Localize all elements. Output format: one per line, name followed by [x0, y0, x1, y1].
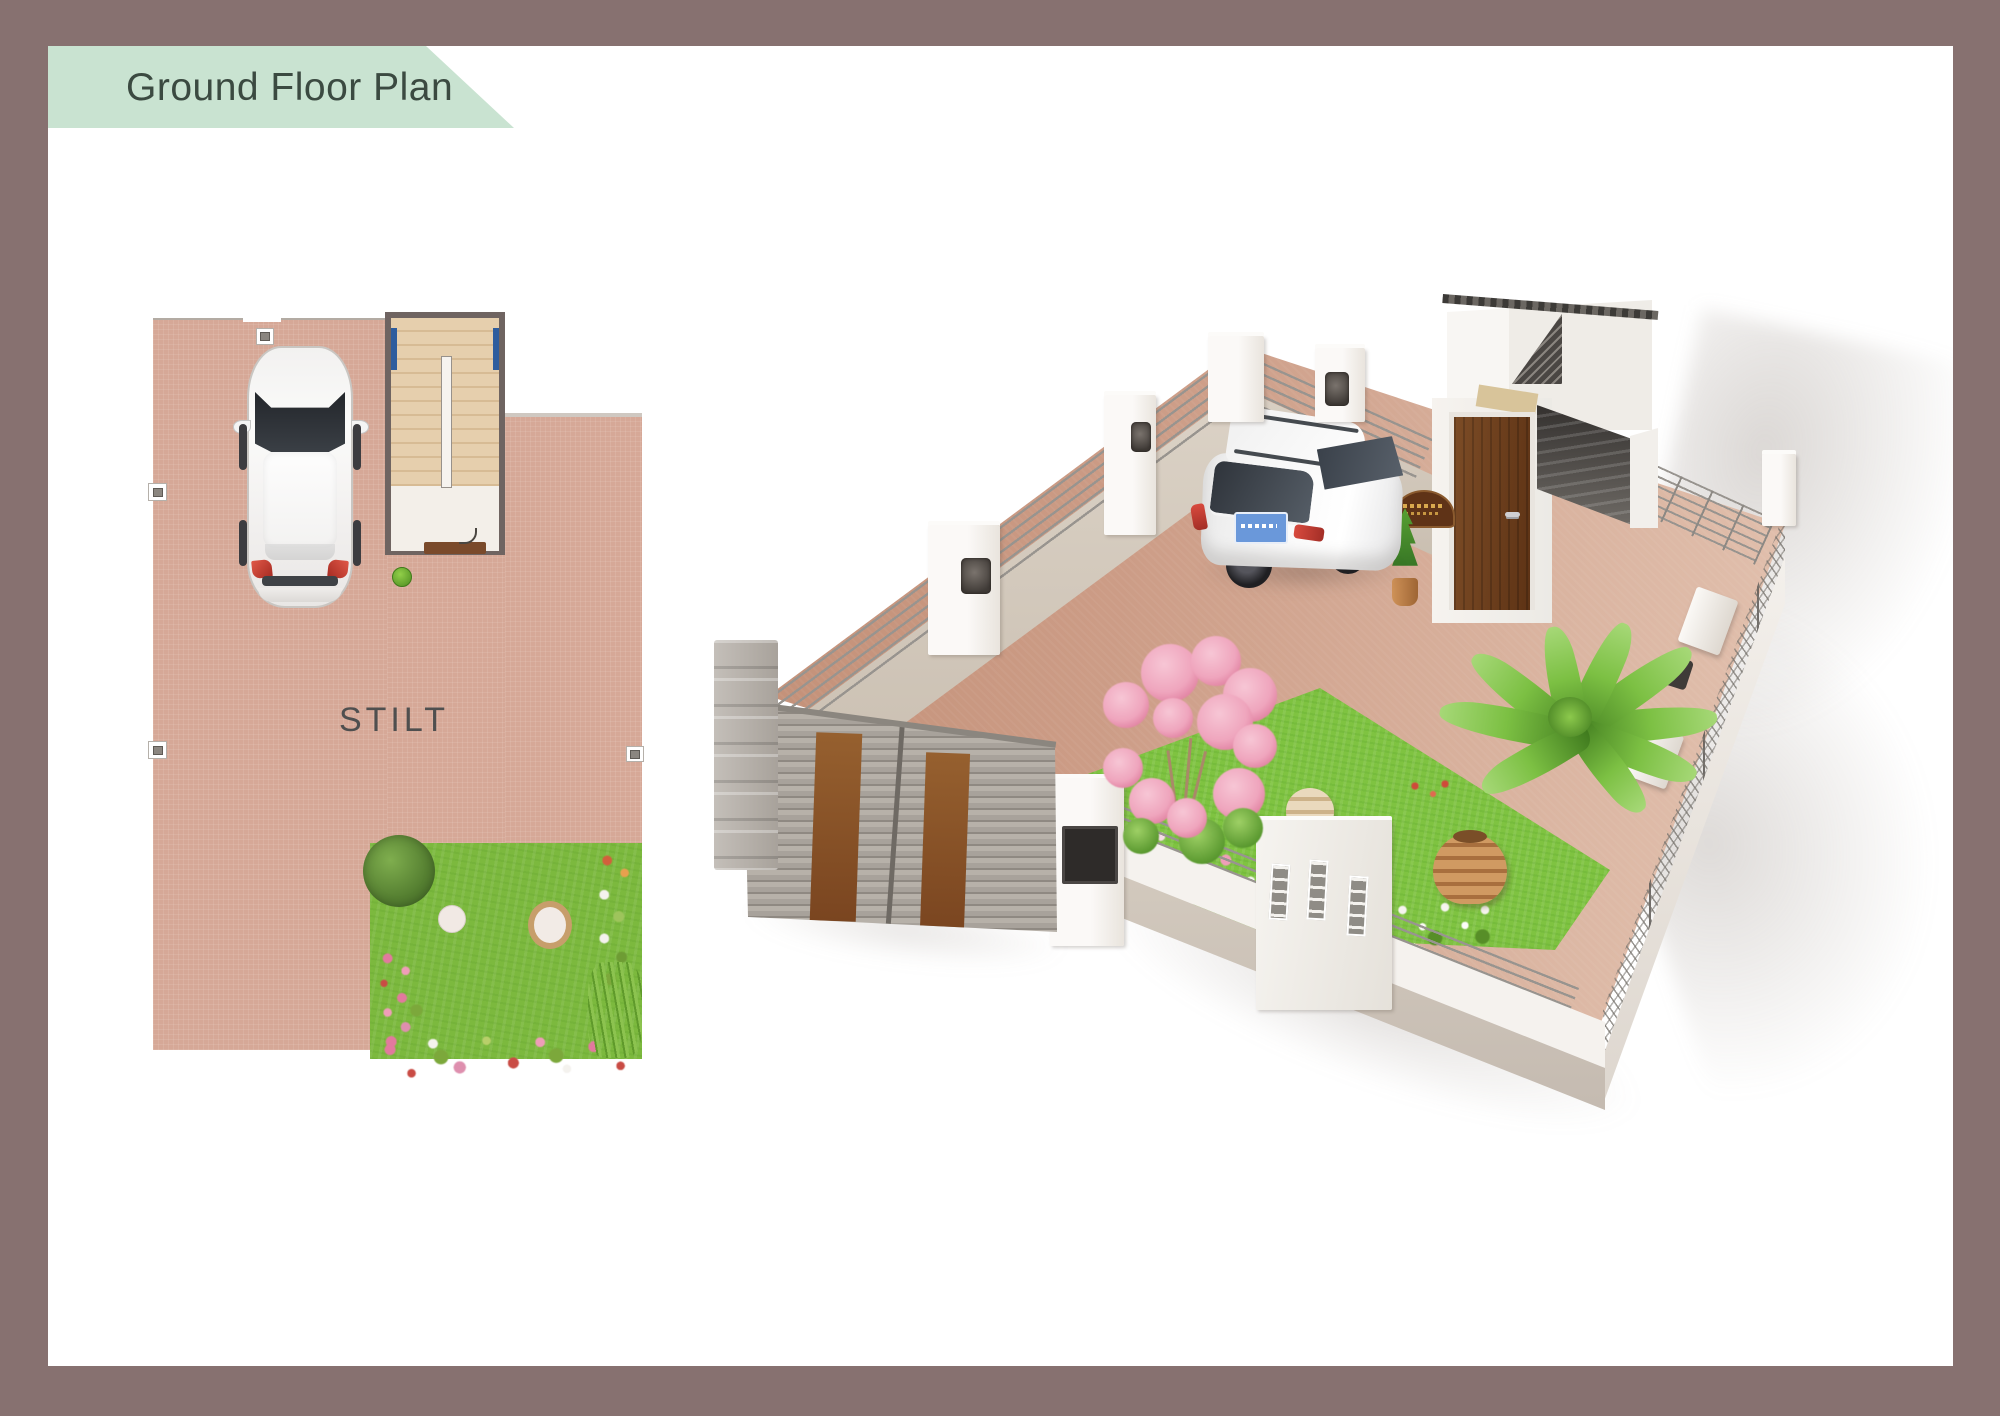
- pot-mouth: [1453, 830, 1487, 843]
- palm-crown: [1548, 697, 1592, 737]
- flowering-tree: [1095, 630, 1285, 890]
- plate-marks: [1241, 524, 1277, 528]
- gate-post-stacked: [714, 640, 778, 870]
- pillar-ornament: [1325, 372, 1349, 406]
- wall-pillar: [1104, 395, 1156, 535]
- pillar-ornament: [961, 558, 991, 594]
- corner-pillar: [1208, 336, 1264, 422]
- palm-plant: [1420, 545, 1720, 875]
- gate-plank: [810, 732, 863, 921]
- suv-car-3d: [1190, 408, 1420, 603]
- pillar-slot: [1306, 860, 1328, 921]
- pillar-ornament: [1131, 422, 1151, 452]
- door-handle-icon: [1505, 512, 1520, 517]
- render-3d: [0, 0, 2000, 1416]
- gate-plank: [920, 752, 970, 931]
- planter-pot: [1433, 834, 1507, 904]
- ground-floor-plan-sheet: STILT: [0, 0, 2000, 1416]
- corner-pillar: [1762, 454, 1796, 526]
- pillar-slot: [1346, 876, 1368, 937]
- gate-divider: [886, 719, 905, 924]
- license-plate: [1234, 512, 1288, 544]
